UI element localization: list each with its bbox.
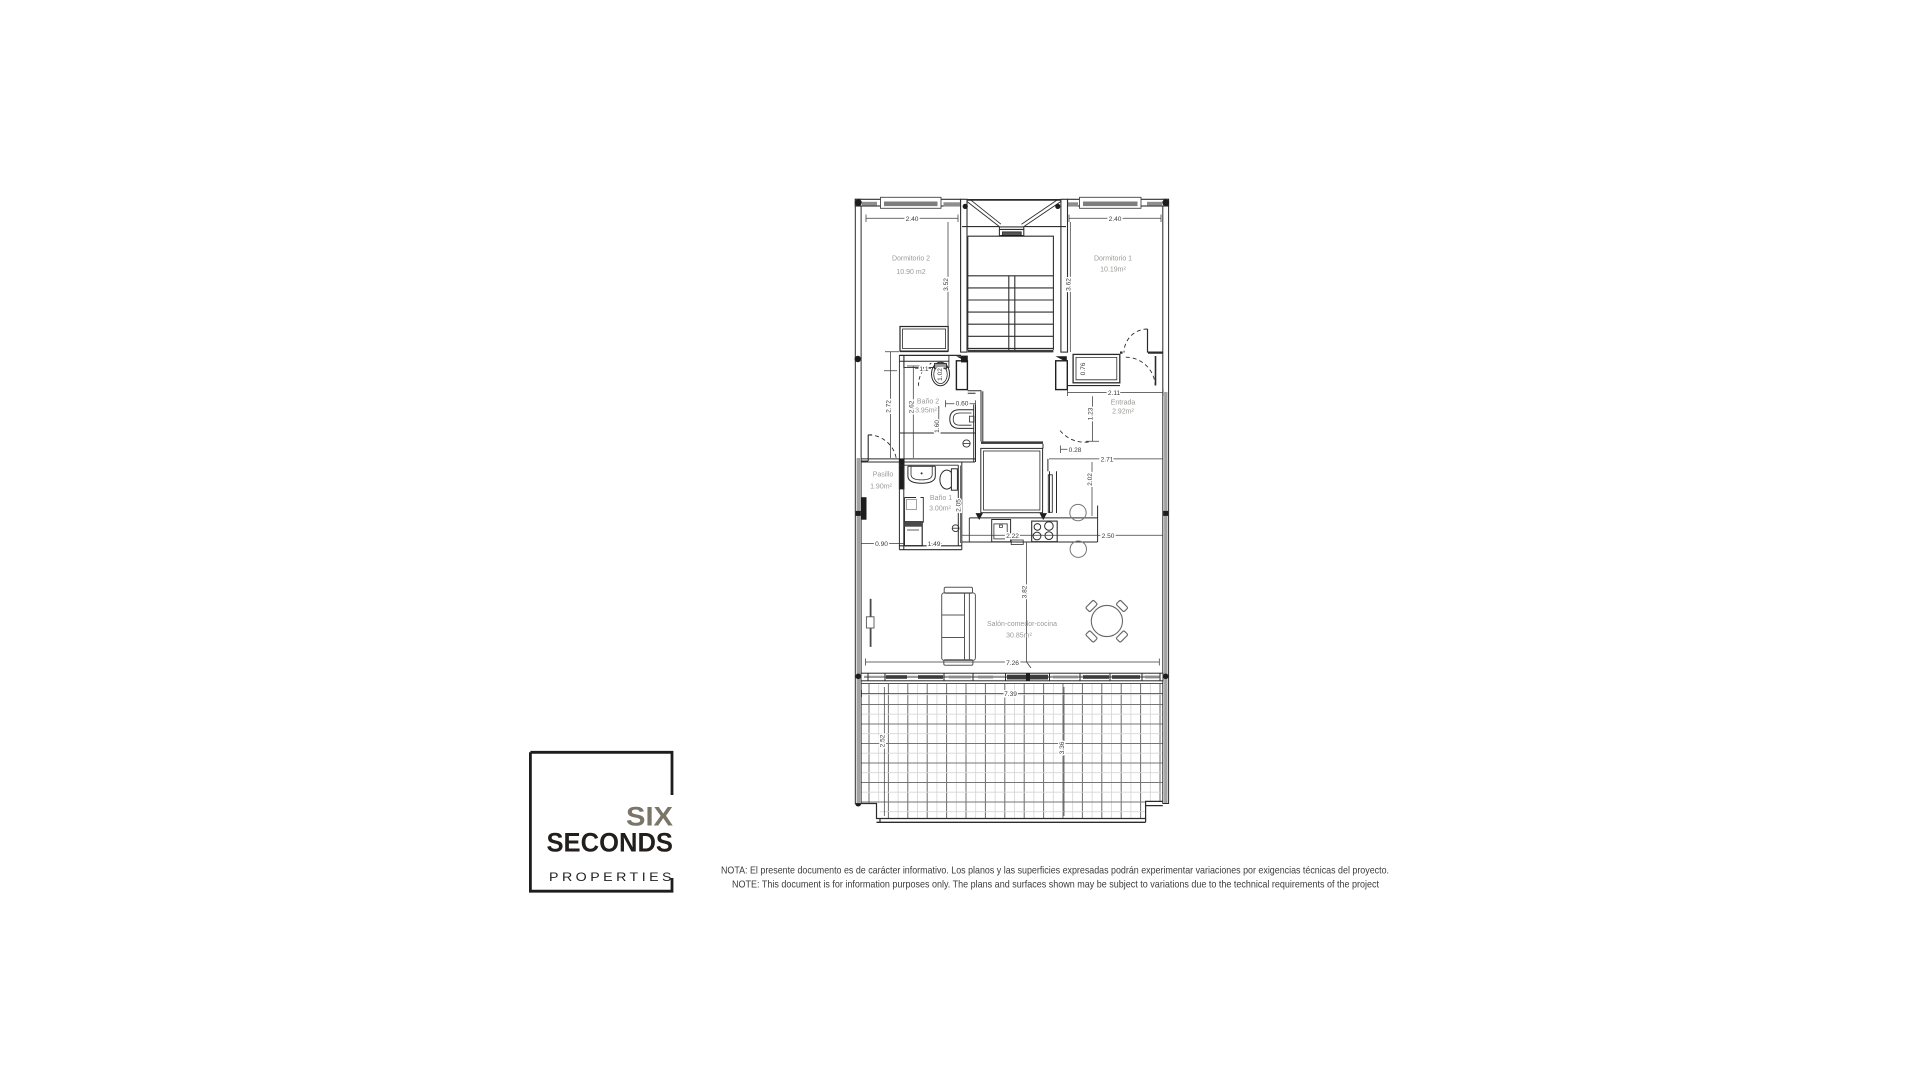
svg-text:NOTE: This document is for inf: NOTE: This document is for information p… [732,879,1379,890]
svg-text:0.28: 0.28 [1069,447,1082,454]
svg-text:PROPERTIES: PROPERTIES [549,870,675,884]
svg-text:3.52: 3.52 [943,278,950,291]
svg-text:2.50: 2.50 [1102,533,1115,540]
svg-text:2.22: 2.22 [1006,533,1019,540]
svg-text:3.82: 3.82 [1022,585,1029,598]
svg-text:2.40: 2.40 [1109,216,1122,223]
svg-text:2.02: 2.02 [1087,473,1094,486]
svg-text:1.1: 1.1 [919,366,928,373]
svg-text:Dormitorio 1: Dormitorio 1 [1094,256,1132,263]
svg-text:0.90: 0.90 [875,541,888,548]
svg-text:Entrada: Entrada [1111,400,1136,407]
svg-text:2.92m²: 2.92m² [1112,409,1134,416]
svg-text:2.05: 2.05 [956,499,963,512]
svg-text:1.02: 1.02 [937,368,944,381]
svg-text:1.90m²: 1.90m² [870,484,892,491]
svg-text:1.23: 1.23 [1087,407,1094,420]
svg-text:Salón-comedor-cocina: Salón-comedor-cocina [987,621,1057,628]
svg-text:Baño 1: Baño 1 [930,495,952,502]
svg-text:Dormitorio 2: Dormitorio 2 [892,256,930,263]
svg-text:0.76: 0.76 [1080,362,1087,375]
svg-text:30.85m²: 30.85m² [1006,633,1032,640]
svg-text:3.95m²: 3.95m² [915,408,937,415]
svg-text:10.19m²: 10.19m² [1100,267,1126,274]
svg-text:10.90 m2: 10.90 m2 [896,269,925,276]
svg-text:2.40: 2.40 [906,216,919,223]
svg-text:Pasillo: Pasillo [873,472,894,479]
svg-text:2.72: 2.72 [886,400,893,413]
svg-text:7.26: 7.26 [1006,660,1019,667]
svg-text:7.39: 7.39 [1004,691,1017,698]
svg-text:1.49: 1.49 [928,541,941,548]
svg-text:3.36: 3.36 [1059,741,1066,754]
svg-text:1.60: 1.60 [934,420,941,433]
svg-text:2.11: 2.11 [1108,390,1121,397]
svg-text:NOTA: El presente documento es: NOTA: El presente documento es de caráct… [721,866,1389,877]
svg-text:2.71: 2.71 [1101,456,1114,463]
svg-text:Baño 2: Baño 2 [917,399,939,406]
svg-text:SECONDS: SECONDS [547,828,674,858]
svg-text:3.62: 3.62 [1065,278,1072,291]
svg-text:3.00m²: 3.00m² [929,506,951,513]
svg-text:2.52: 2.52 [879,734,886,747]
svg-text:0.60: 0.60 [956,401,969,408]
